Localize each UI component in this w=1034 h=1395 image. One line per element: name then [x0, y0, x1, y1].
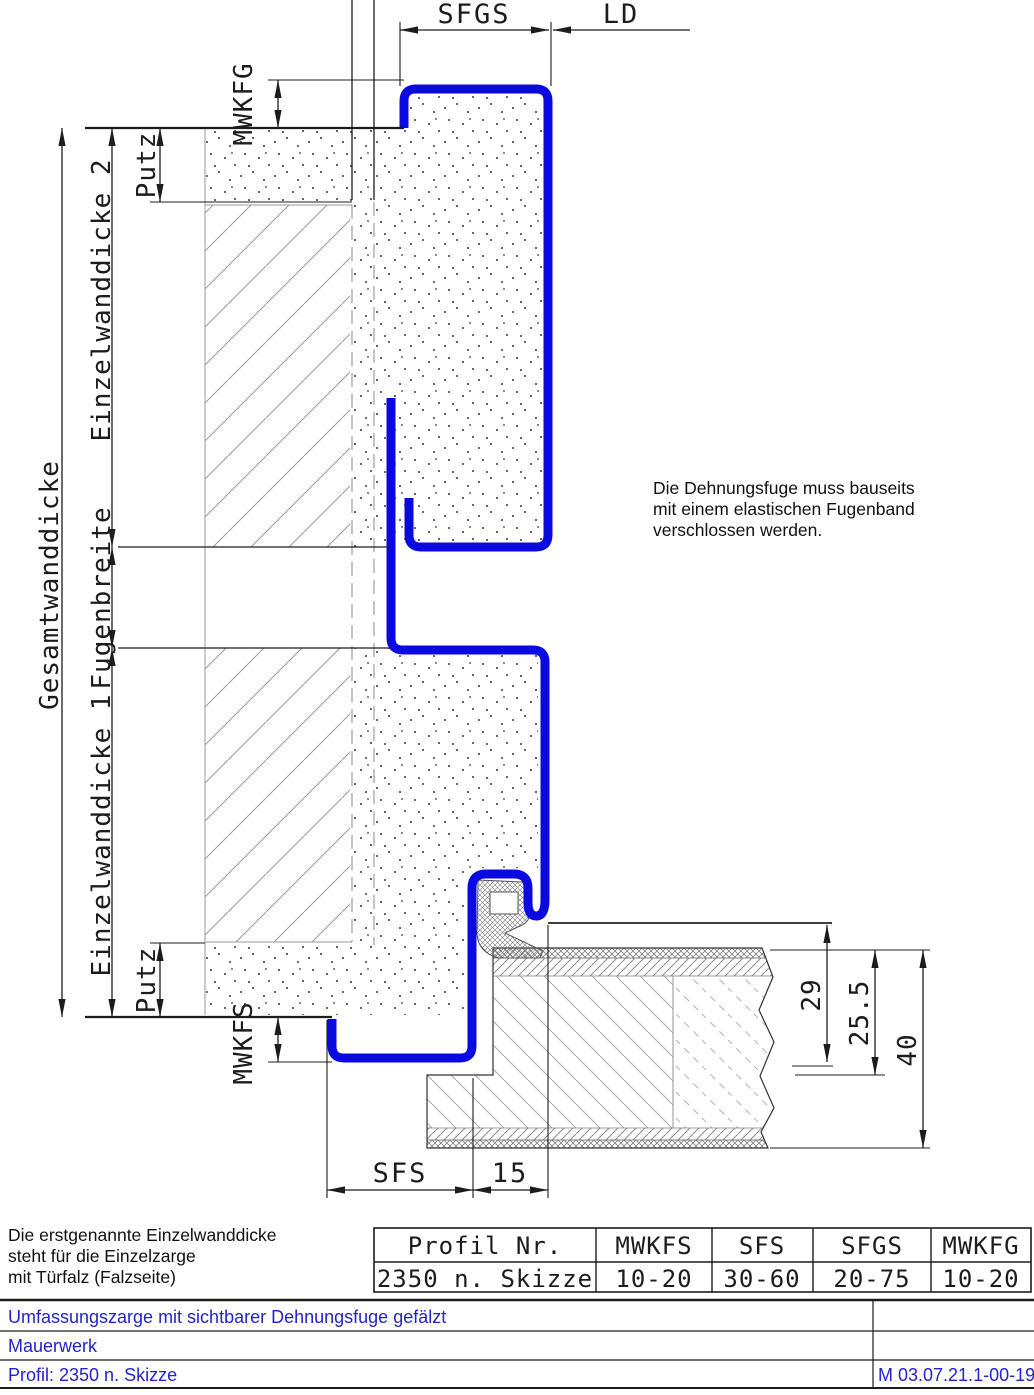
table-cell-mwkfs: 10-20 — [615, 1265, 692, 1293]
label-einzelwanddicke2: Einzelwanddicke 2 — [87, 158, 117, 441]
title-block-description: Umfassungszarge mit sichtbarer Dehnungsf… — [8, 1307, 446, 1327]
note-einzelwanddicke-line1: Die erstgenannte Einzelwanddicke — [8, 1225, 277, 1245]
table-header-mwkfs: MWKFS — [615, 1232, 692, 1260]
note-dehnungsfuge-line3: verschlossen werden. — [653, 520, 822, 540]
profile-table: Profil Nr. MWKFS SFS SFGS MWKFG 2350 n. … — [374, 1228, 1031, 1293]
label-29: 29 — [797, 978, 827, 1011]
title-block-drawing-number: M 03.07.21.1-00-19 — [878, 1365, 1034, 1385]
brick-block-upper — [205, 205, 350, 547]
title-block-wall-type: Mauerwerk — [8, 1336, 98, 1356]
brick-block-lower — [205, 648, 350, 942]
label-40: 40 — [893, 1033, 923, 1066]
label-gesamtwanddicke: Gesamtwanddicke — [35, 460, 65, 710]
wall-brick-hatch — [205, 128, 374, 1015]
note-einzelwanddicke-line3: mit Türfalz (Falzseite) — [8, 1267, 176, 1287]
note-einzelwanddicke-line2: steht für die Einzelzarge — [8, 1246, 196, 1266]
note-dehnungsfuge-line2: mit einem elastischen Fugenband — [653, 499, 915, 519]
label-sfs: SFS — [373, 1158, 428, 1189]
label-putz-bottom: Putz — [132, 947, 162, 1014]
label-fugenbreite: Fugenbreite — [87, 506, 117, 689]
label-sfgs: SFGS — [437, 0, 510, 30]
label-mwkfs: MWKFS — [229, 1001, 259, 1084]
table-cell-sfs: 30-60 — [723, 1265, 800, 1293]
label-15: 15 — [492, 1158, 529, 1189]
table-cell-sfgs: 20-75 — [833, 1265, 910, 1293]
table-header-sfgs: SFGS — [841, 1232, 903, 1260]
table-header-sfs: SFS — [739, 1232, 785, 1260]
gasket-chamber — [490, 892, 518, 914]
door-leaf — [420, 923, 832, 1148]
table-cell-profil-nr: 2350 n. Skizze — [377, 1265, 593, 1293]
note-einzelwanddicke: Die erstgenannte Einzelwanddicke steht f… — [8, 1225, 277, 1287]
table-cell-mwkfg: 10-20 — [942, 1265, 1019, 1293]
table-header-mwkfg: MWKFG — [942, 1232, 1019, 1260]
note-dehnungsfuge-line1: Die Dehnungsfuge muss bauseits — [653, 478, 915, 498]
drawing-canvas: SFGS LD MWKFG Putz Einzelwanddicke 2 Ges… — [0, 0, 1034, 1390]
label-einzelwanddicke1: Einzelwanddicke 1 — [87, 693, 117, 976]
title-block: Umfassungszarge mit sichtbarer Dehnungsf… — [0, 1300, 1034, 1388]
label-putz-top: Putz — [132, 132, 162, 199]
label-mwkfg: MWKFG — [229, 62, 259, 145]
table-header-profil-nr: Profil Nr. — [408, 1232, 563, 1260]
title-block-profile: Profil: 2350 n. Skizze — [8, 1365, 177, 1385]
label-ld: LD — [603, 0, 640, 30]
label-25-5: 25.5 — [845, 980, 875, 1047]
note-dehnungsfuge: Die Dehnungsfuge muss bauseits mit einem… — [653, 478, 915, 540]
